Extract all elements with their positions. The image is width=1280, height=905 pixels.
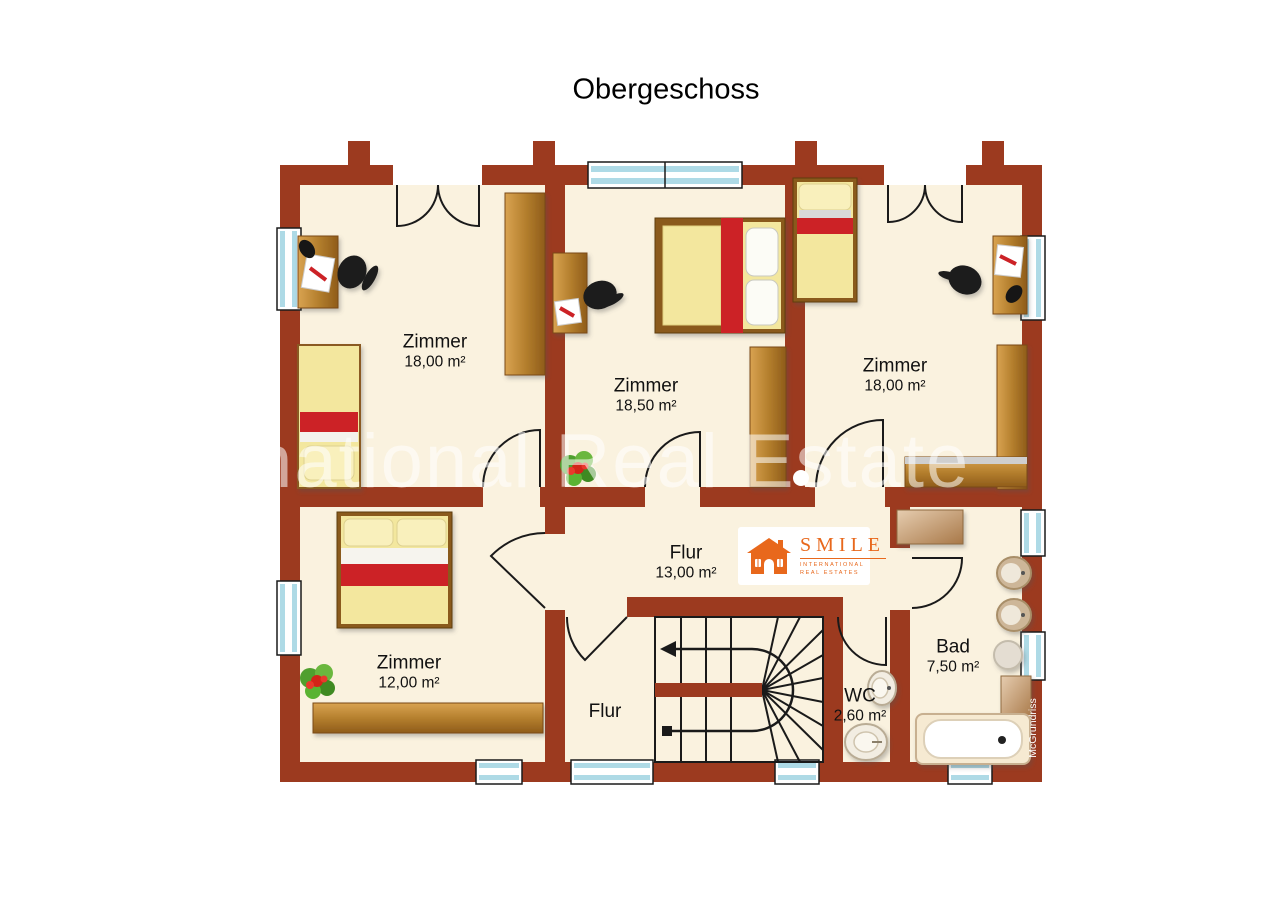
desk [553, 253, 587, 333]
window [1021, 510, 1045, 556]
bath-cabinet [897, 510, 963, 544]
window [1021, 632, 1045, 680]
stool-icon [994, 641, 1022, 669]
double-bed [655, 218, 785, 333]
door-stop-dot [793, 470, 809, 486]
single-bed [793, 178, 857, 302]
stair-arrow-start [662, 726, 672, 736]
wardrobe [750, 347, 786, 487]
floor-plan [0, 0, 1280, 905]
house-icon [747, 537, 791, 575]
logo-subtitle: INTERNATIONAL REAL ESTATES [800, 558, 886, 578]
window [571, 760, 653, 784]
sideboard [313, 703, 543, 733]
wardrobe [505, 193, 545, 375]
double-bed [337, 512, 452, 628]
label-room-top-right: Zimmer18,00 m² [863, 356, 927, 397]
label-wc: WC2,60 m² [834, 686, 887, 727]
window [277, 228, 301, 310]
bathtub-icon [916, 714, 1030, 764]
logo-text: SMILE INTERNATIONAL REAL ESTATES [800, 535, 886, 578]
desk [993, 236, 1027, 314]
label-hall-upper: Flur13,00 m² [655, 543, 716, 584]
single-bed [298, 345, 360, 488]
label-bath: Bad7,50 m² [927, 637, 980, 678]
label-room-top-middle: Zimmer18,50 m² [614, 376, 678, 417]
label-room-bottom-left: Zimmer12,00 m² [377, 653, 441, 694]
smile-logo: SMILE INTERNATIONAL REAL ESTATES [738, 527, 870, 585]
sink-icon [997, 599, 1031, 631]
floorplan-page: Obergeschoss [0, 0, 1280, 905]
toilet-icon [845, 724, 887, 760]
window [277, 581, 301, 655]
window [588, 162, 742, 188]
label-room-top-left: Zimmer18,00 m² [403, 332, 467, 373]
sink-icon [997, 557, 1031, 589]
logo-name: SMILE [800, 535, 886, 555]
desk [296, 236, 338, 308]
window [775, 760, 819, 784]
window [476, 760, 522, 784]
stair-divider-wall [655, 683, 762, 697]
label-hall-lower: Flur [589, 701, 622, 723]
credit-mcgrundriss: McGrundriss [1027, 698, 1039, 758]
